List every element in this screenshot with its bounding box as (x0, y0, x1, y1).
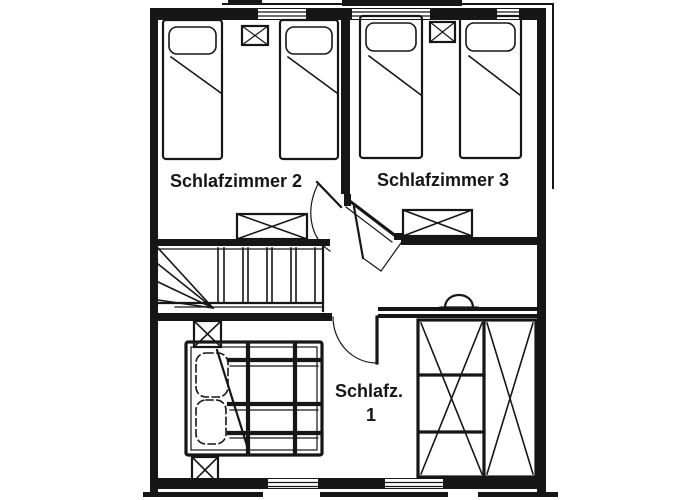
stair-treads (218, 248, 315, 302)
bed-frame (163, 20, 222, 159)
crossed-box (430, 22, 455, 42)
bedroom-3-furniture (360, 16, 521, 236)
staircase (155, 248, 323, 308)
single-bed (280, 20, 338, 159)
window-opening (352, 9, 430, 19)
stair-winders (158, 248, 213, 308)
pillow (466, 23, 515, 51)
crossed-box (242, 26, 268, 45)
window-opening (258, 9, 306, 19)
wall-left (150, 8, 158, 492)
crossed-box (403, 210, 472, 236)
window (268, 479, 318, 488)
wall-stub (344, 194, 351, 206)
blanket-fold-line (171, 57, 221, 93)
pillow (366, 23, 416, 51)
door-swing-arc (363, 243, 401, 271)
wall-between-bedrooms (341, 8, 350, 194)
pillow (196, 400, 226, 444)
wall-outer-line (222, 3, 554, 5)
blanket-fold-line (469, 56, 520, 95)
door-leaf (354, 207, 363, 258)
bed-frame (460, 16, 521, 158)
door-leaf-line (346, 207, 392, 242)
single-bed (360, 16, 422, 158)
room-label-schlafzimmer-3: Schlafzimmer 3 (377, 170, 509, 190)
semicircle-fixture (440, 295, 478, 307)
door-swing-arc (333, 317, 377, 363)
interior-walls (150, 8, 546, 321)
wardrobe-frame (418, 320, 536, 477)
bed-frame (360, 16, 422, 158)
room-label-schlafzimmer-1: Schlafz. (335, 381, 403, 401)
floor-plan-svg: Schlafzimmer 2 Schlafzimmer 3 Schlafz. 1 (0, 0, 700, 500)
semicircle-arc (445, 295, 473, 307)
door-leaf (317, 182, 341, 207)
wardrobe (418, 320, 536, 477)
window (385, 479, 443, 488)
wall-right (537, 8, 546, 492)
wall-outer-line (143, 492, 263, 497)
crossed-box (237, 214, 307, 239)
wall-hall-south-right (378, 314, 537, 318)
blanket-fold-line (288, 57, 337, 93)
wall-outer-line (320, 492, 448, 497)
wall-hall-south-left (150, 313, 332, 321)
window (258, 9, 306, 19)
bedroom-2-furniture (163, 20, 338, 239)
pillow (286, 27, 332, 54)
room-label-schlafzimmer-1-number: 1 (366, 405, 376, 425)
window-opening (497, 9, 519, 19)
doors (311, 182, 404, 363)
pillow (196, 353, 228, 397)
single-bed (460, 16, 521, 158)
wall-outer-line (552, 3, 554, 189)
pillow (169, 27, 216, 54)
window (497, 9, 519, 19)
double-bed (186, 342, 322, 455)
room-label-schlafzimmer-2: Schlafzimmer 2 (170, 171, 302, 191)
wall-outer-line (478, 492, 558, 497)
wall-bedroom3-south (401, 237, 546, 245)
labels: Schlafzimmer 2 Schlafzimmer 3 Schlafz. 1 (170, 170, 509, 425)
bed-frame (280, 20, 338, 159)
winder-line (158, 248, 213, 308)
floor-plan: Schlafzimmer 2 Schlafzimmer 3 Schlafz. 1 (0, 0, 700, 500)
window (352, 9, 430, 19)
single-bed (163, 20, 222, 159)
blanket-fold-line (369, 56, 421, 95)
